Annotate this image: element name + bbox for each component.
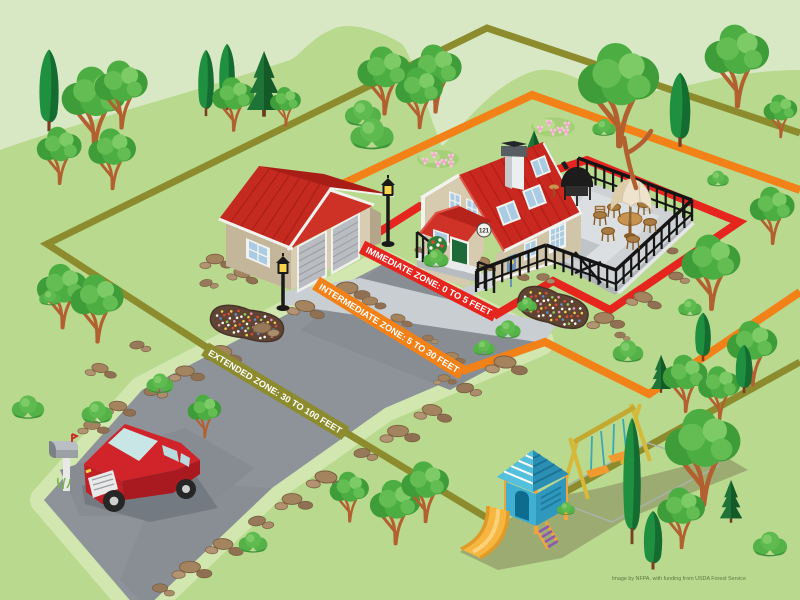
- svg-text:Image by NFPA, with funding fr: Image by NFPA, with funding from USDA Fo…: [612, 576, 746, 582]
- svg-text:121: 121: [479, 229, 490, 235]
